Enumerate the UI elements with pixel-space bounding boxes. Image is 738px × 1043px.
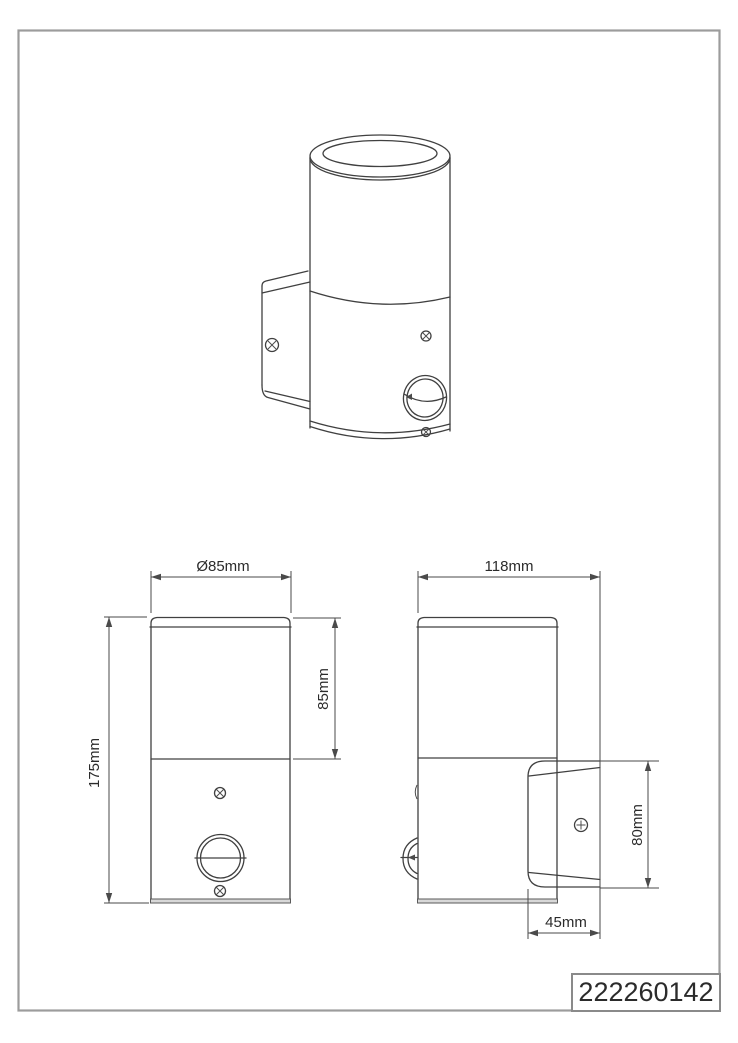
bracket-height-label: 80mm bbox=[629, 804, 646, 846]
side-view bbox=[401, 571, 600, 939]
total-depth-label: 118mm bbox=[485, 558, 534, 575]
diameter-label: Ø85mm bbox=[196, 558, 249, 575]
motion-sensor-perspective bbox=[399, 372, 450, 425]
bracket-depth-label: 45mm bbox=[545, 914, 587, 931]
upper-height-label: 85mm bbox=[315, 668, 332, 710]
dimension-total-height: 175mm bbox=[86, 617, 149, 903]
page-border bbox=[19, 31, 720, 1011]
motion-sensor-front bbox=[195, 835, 246, 882]
drawing-page: Ø85mm 175mm 85mm bbox=[0, 0, 738, 1043]
dimension-diameter: Ø85mm bbox=[151, 558, 291, 613]
housing-screw-top-icon bbox=[421, 331, 431, 341]
side-screw-profile bbox=[415, 785, 417, 799]
part-number: 222260142 bbox=[578, 977, 713, 1007]
front-screw-bottom-icon bbox=[215, 886, 226, 897]
perspective-cylinder bbox=[310, 135, 451, 439]
total-height-label: 175mm bbox=[86, 738, 103, 788]
perspective-view bbox=[262, 135, 451, 439]
bracket-screw-icon bbox=[266, 339, 279, 352]
dimension-upper-height: 85mm bbox=[293, 618, 341, 759]
dimension-bracket-height: 80mm bbox=[600, 761, 659, 888]
dimension-bracket-depth: 45mm bbox=[528, 889, 600, 939]
title-block: 222260142 bbox=[572, 974, 720, 1011]
perspective-wall-bracket bbox=[262, 271, 310, 409]
front-base-band bbox=[151, 899, 291, 903]
motion-sensor-side bbox=[401, 838, 417, 879]
front-screw-top-icon bbox=[215, 788, 226, 799]
front-view bbox=[150, 618, 291, 904]
side-wall-bracket bbox=[528, 761, 600, 887]
dimension-total-depth: 118mm bbox=[418, 558, 600, 613]
technical-drawing-canvas: Ø85mm 175mm 85mm bbox=[0, 0, 738, 1043]
side-base-band bbox=[418, 899, 558, 903]
side-bracket-screw-icon bbox=[575, 819, 588, 832]
